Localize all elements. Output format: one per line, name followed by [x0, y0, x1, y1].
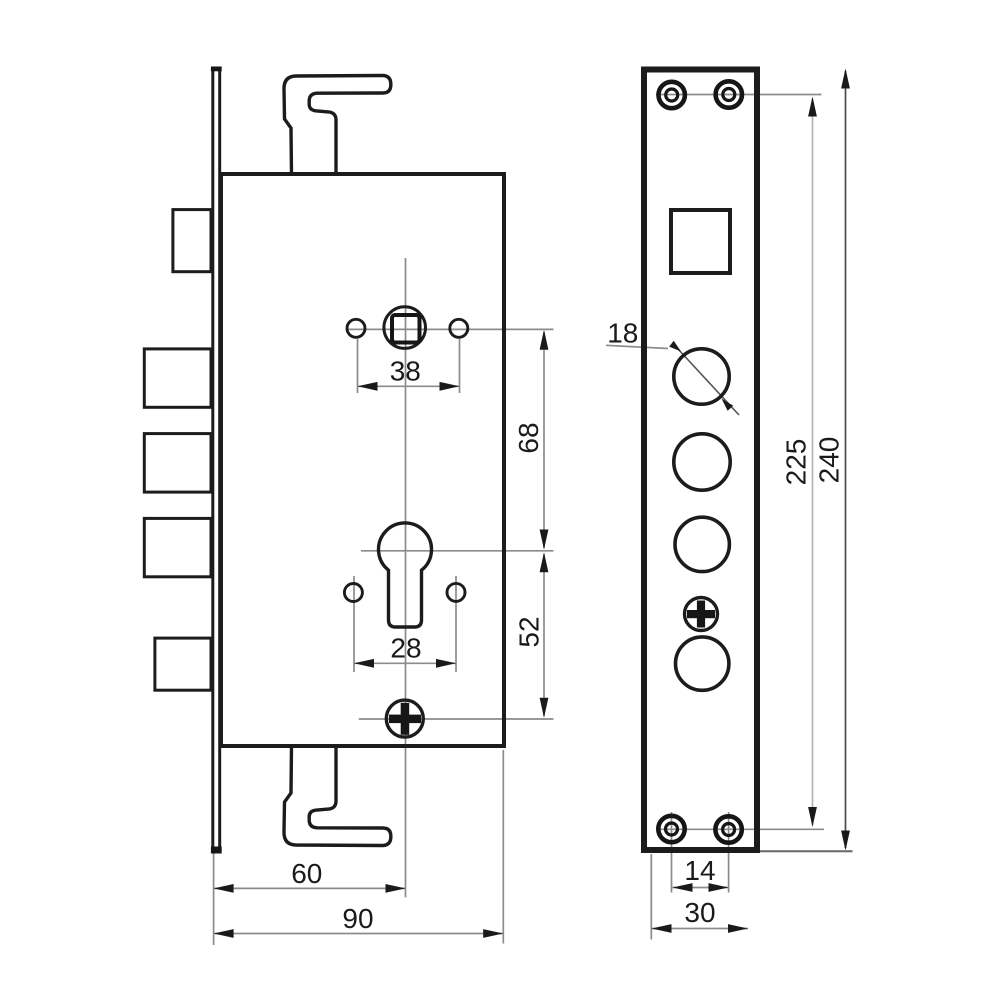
svg-text:68: 68	[513, 422, 544, 453]
svg-text:30: 30	[684, 897, 715, 928]
svg-text:90: 90	[342, 903, 373, 934]
svg-text:52: 52	[514, 616, 545, 647]
svg-text:240: 240	[813, 437, 844, 484]
svg-text:225: 225	[780, 439, 811, 486]
svg-text:28: 28	[390, 632, 421, 663]
svg-text:18: 18	[607, 317, 638, 348]
svg-text:14: 14	[684, 855, 715, 886]
svg-text:38: 38	[390, 356, 421, 387]
svg-text:60: 60	[291, 858, 322, 889]
